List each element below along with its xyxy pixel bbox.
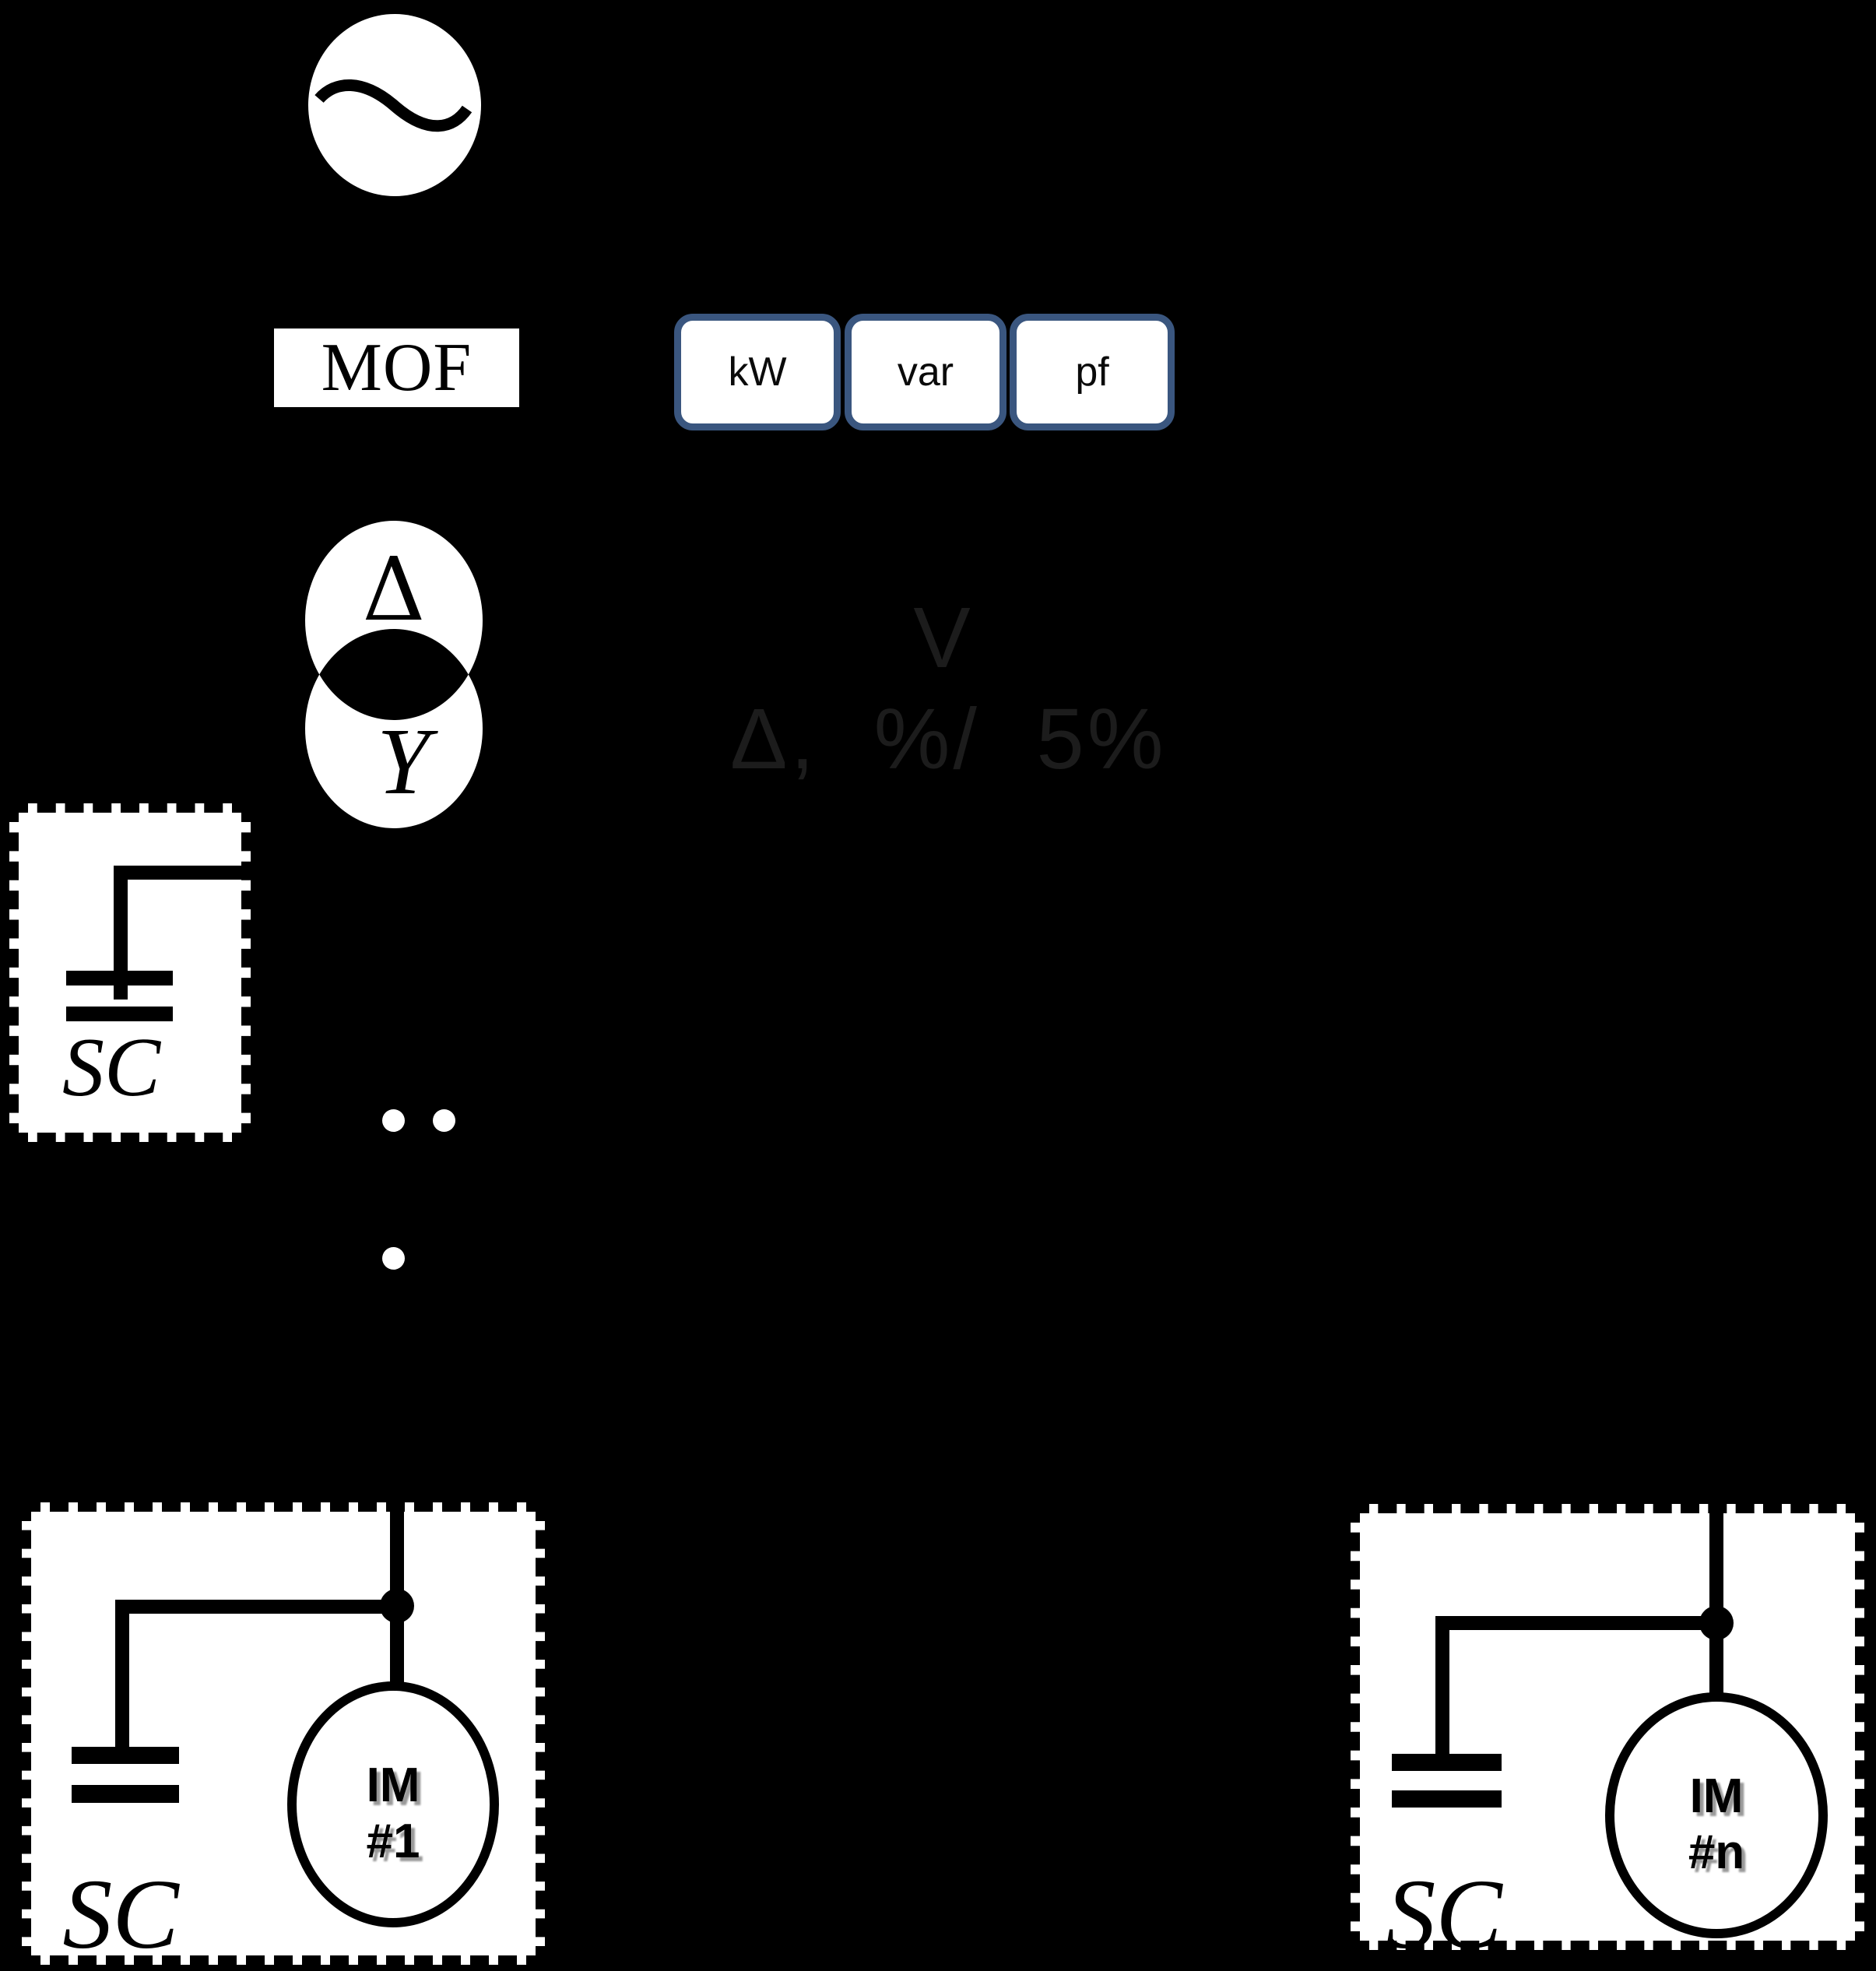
induction-motor-1-label-line2: #1 [315,1814,471,1870]
meter-pf-label: pf [1075,352,1108,392]
feeder-1-capacitor-label: SC [27,1864,214,1964]
feeder1-branch-hline [115,1600,397,1614]
transformer-secondary-symbol: Y [341,715,465,810]
feeder1-capacitor-plate-bottom [72,1785,179,1803]
feederN-capacitor-plate-top [1392,1754,1502,1771]
feederN-junction-dot [1699,1606,1734,1640]
induction-motor-1-label-line1: IM [315,1758,471,1814]
transformer-primary-symbol: Δ [332,546,456,634]
sc-branch-hline [114,866,251,880]
ellipsis-dot-2 [433,1109,455,1132]
mof-box: MOF [274,328,519,407]
mof-label: MOF [321,334,473,402]
meter-kw-label: kW [728,352,786,392]
feederN-capacitor-plate-bottom [1392,1790,1502,1808]
feederN-supply-vline [1709,1504,1723,1697]
induction-motor-n-label-line1: IM [1639,1769,1794,1825]
feeder1-capacitor-plate-top [72,1747,179,1764]
single-line-diagram: MOF kW var pf Δ Y V Δ, %/ 5% SC [0,0,1876,1971]
ac-source-icon [304,11,486,202]
ellipsis-dot-3 [382,1247,405,1270]
voltage-regulation-label-line2: Δ, %/ 5% [730,697,1167,782]
meter-pf: pf [1010,314,1175,430]
capacitor-plate-bottom [66,1007,173,1021]
ellipsis-dot-1 [382,1109,405,1132]
voltage-regulation-label-line1: V [895,596,989,681]
capacitor-plate-top [66,971,173,985]
meter-var-label: var [898,352,954,392]
station-capacitor-label: SC [0,1026,232,1110]
induction-motor-n-label-line2: #n [1639,1825,1794,1881]
meter-kw: kW [674,314,841,430]
induction-motor-n-label: IM #n [1639,1769,1794,1881]
feeder-n-capacitor-label: SC [1351,1864,1537,1964]
feeder1-cap-vline [115,1600,129,1751]
induction-motor-1-label: IM #1 [315,1758,471,1870]
feederN-cap-vline [1435,1616,1449,1754]
feeder1-junction-dot [380,1589,414,1623]
feederN-branch-hline [1435,1616,1716,1630]
meter-var: var [845,314,1007,430]
